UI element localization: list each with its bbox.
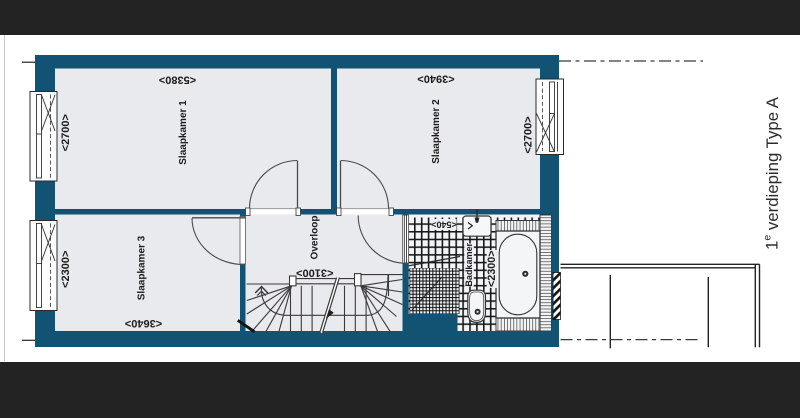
svg-text:<2700>: <2700> (523, 116, 535, 153)
svg-text:<3640>: <3640> (125, 317, 162, 329)
svg-text:<2300>: <2300> (60, 251, 72, 288)
svg-text:Overloop: Overloop (309, 216, 320, 260)
svg-text:Badkamer: Badkamer (464, 243, 474, 287)
svg-text:<540>: <540> (431, 220, 457, 230)
svg-text:<3940>: <3940> (417, 73, 454, 85)
svg-text:Slaapkamer 2: Slaapkamer 2 (431, 99, 442, 164)
svg-text:<2700>: <2700> (60, 114, 72, 151)
svg-text:1e verdieping Type A: 1e verdieping Type A (762, 96, 782, 250)
svg-text:<5380>: <5380> (159, 73, 196, 85)
svg-text:Slaapkamer 1: Slaapkamer 1 (178, 100, 189, 165)
svg-text:Slaapkamer 3: Slaapkamer 3 (137, 235, 148, 300)
svg-text:<3100>: <3100> (296, 266, 333, 278)
svg-text:<2300>: <2300> (486, 250, 498, 287)
